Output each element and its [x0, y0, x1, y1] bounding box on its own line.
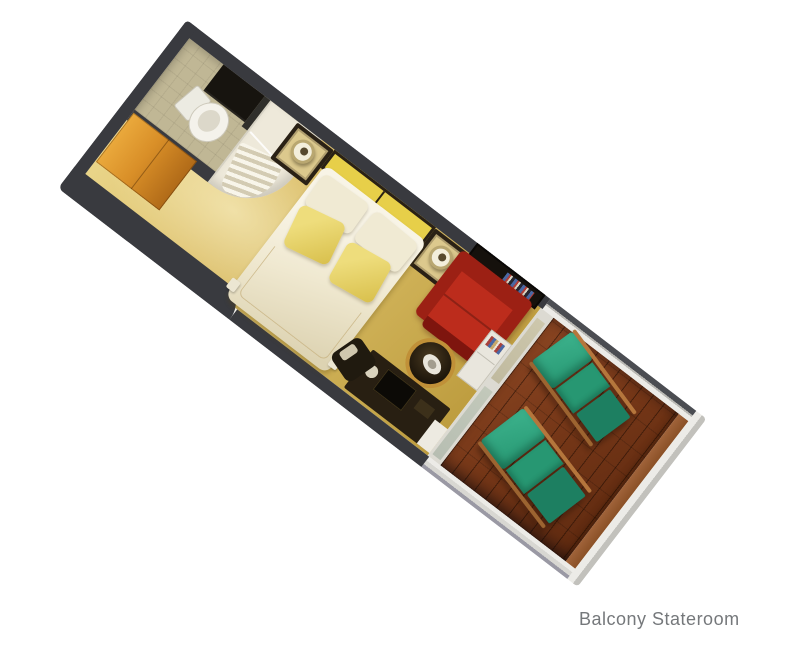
page-background: { "caption": { "text": "Balcony Stateroo… — [0, 0, 800, 646]
desk-item — [414, 399, 436, 419]
shelf-divider — [477, 351, 495, 365]
room-type-label: Balcony Stateroom — [579, 609, 740, 631]
shelf-items — [485, 336, 505, 355]
stateroom-floorplan — [58, 20, 707, 587]
chair-cushion — [338, 343, 358, 361]
table-flowers — [419, 351, 445, 378]
